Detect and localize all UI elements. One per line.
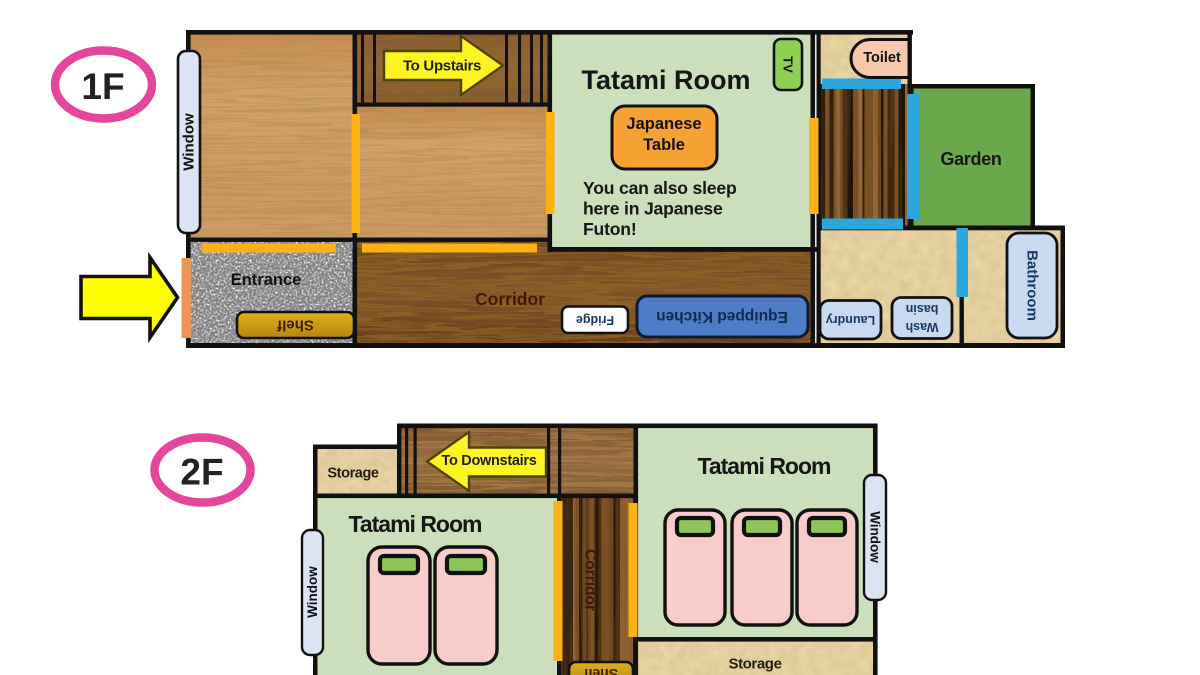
svg-text:To Upstairs: To Upstairs [403, 58, 481, 75]
svg-text:Bathroom: Bathroom [1024, 250, 1041, 321]
svg-text:1F: 1F [81, 66, 124, 107]
svg-text:Tatami Room: Tatami Room [698, 453, 832, 479]
svg-text:Laundry: Laundry [826, 313, 875, 327]
svg-text:Fridge: Fridge [576, 313, 614, 327]
svg-text:Corridor: Corridor [582, 549, 599, 611]
svg-text:You can also sleep: You can also sleep [583, 178, 737, 198]
svg-text:Entrance: Entrance [231, 271, 302, 289]
svg-text:Window: Window [305, 566, 320, 618]
svg-text:To Downstairs: To Downstairs [442, 453, 537, 469]
svg-text:Window: Window [868, 511, 883, 563]
svg-text:Tatami Room: Tatami Room [349, 511, 483, 537]
svg-text:Tatami Room: Tatami Room [581, 65, 750, 95]
svg-text:Shelf: Shelf [276, 317, 314, 334]
svg-text:Toilet: Toilet [863, 50, 901, 66]
svg-text:Shelf: Shelf [584, 666, 619, 675]
svg-text:2F: 2F [180, 452, 223, 493]
svg-text:here in Japanese: here in Japanese [583, 199, 723, 219]
svg-text:Futon!: Futon! [583, 219, 637, 239]
svg-text:Garden: Garden [940, 149, 1001, 169]
svg-text:Wash: Wash [906, 320, 939, 334]
svg-text:TV: TV [781, 56, 796, 73]
svg-text:Window: Window [181, 113, 198, 171]
svg-text:Japanese: Japanese [626, 115, 701, 133]
svg-text:basin: basin [906, 302, 939, 316]
svg-text:Storage: Storage [728, 656, 781, 673]
svg-text:Storage: Storage [327, 466, 379, 482]
svg-text:Corridor: Corridor [475, 289, 545, 309]
svg-text:Equipped Kitchen: Equipped Kitchen [656, 308, 788, 325]
svg-text:Table: Table [643, 136, 685, 154]
